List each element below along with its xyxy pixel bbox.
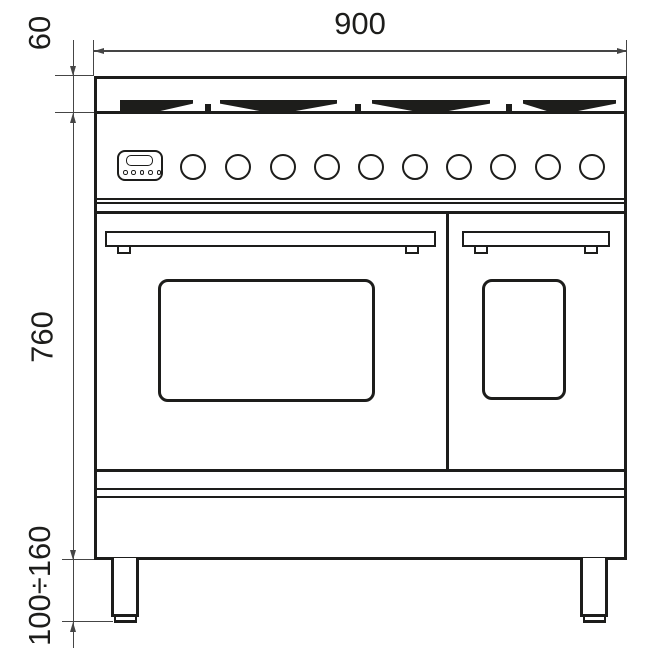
burner-block xyxy=(120,100,156,112)
grate-wing xyxy=(573,100,616,112)
grate-tick xyxy=(506,104,512,112)
right-leg xyxy=(580,558,608,617)
handle-foot xyxy=(405,245,419,254)
grate-wing xyxy=(290,100,337,112)
extension-line-top-right xyxy=(626,40,627,76)
burner-profile xyxy=(94,100,627,112)
left-oven-window xyxy=(158,279,375,402)
grate-tick xyxy=(355,104,361,112)
dimension-label-body-height: 760 xyxy=(28,309,58,366)
right-oven-window xyxy=(482,279,566,400)
display-buttons xyxy=(123,170,161,175)
door-divider-line xyxy=(446,212,449,470)
panel-trim-line xyxy=(96,198,625,200)
handle-foot xyxy=(584,245,598,254)
dimension-label-overall-width: 900 xyxy=(310,9,410,39)
arrow-down-icon xyxy=(70,550,76,560)
plinth-trim-line xyxy=(96,496,625,498)
right-leg-foot xyxy=(583,615,606,623)
handle-foot xyxy=(117,245,131,254)
display-screen xyxy=(126,155,153,166)
control-knob xyxy=(446,154,472,180)
grate-wing xyxy=(156,100,193,112)
left-oven-handle xyxy=(105,231,436,247)
control-knob xyxy=(314,154,340,180)
grate-tick xyxy=(205,104,211,112)
dimension-line-900 xyxy=(94,50,627,52)
handle-foot xyxy=(474,245,488,254)
technical-drawing: 900 60 760 100÷160 xyxy=(0,0,650,650)
timer-display-unit xyxy=(117,150,163,181)
display-button xyxy=(140,170,145,175)
control-knob xyxy=(358,154,384,180)
display-button xyxy=(148,170,153,175)
grate-wing xyxy=(443,100,490,112)
burner-block xyxy=(550,100,573,112)
dimension-label-hob-depth: 60 xyxy=(25,14,55,52)
control-knob xyxy=(490,154,516,180)
arrow-up-icon xyxy=(70,622,76,632)
display-button xyxy=(131,170,136,175)
control-knob xyxy=(270,154,296,180)
burner-block xyxy=(418,100,443,112)
control-knob xyxy=(180,154,206,180)
arrow-left-icon xyxy=(94,48,104,54)
dimension-label-leg-height: 100÷160 xyxy=(25,528,55,646)
arrow-down-icon xyxy=(70,66,76,76)
display-button xyxy=(123,170,128,175)
control-knob xyxy=(402,154,428,180)
grate-wing xyxy=(372,100,418,112)
doors-bottom-line xyxy=(96,469,625,472)
panel-trim-line xyxy=(96,202,625,204)
burner-block xyxy=(265,100,290,112)
left-leg xyxy=(111,558,139,617)
doors-top-line xyxy=(96,211,625,214)
grate-wing xyxy=(523,100,550,112)
plinth-trim-line xyxy=(96,488,625,490)
arrow-up-icon xyxy=(70,113,76,123)
left-leg-foot xyxy=(114,615,137,623)
extension-line-body-bottom xyxy=(62,559,94,560)
extension-line-top-left xyxy=(93,40,94,76)
control-knob xyxy=(535,154,561,180)
display-button xyxy=(157,170,162,175)
control-knob xyxy=(225,154,251,180)
control-knob xyxy=(579,154,605,180)
grate-wing xyxy=(220,100,265,112)
